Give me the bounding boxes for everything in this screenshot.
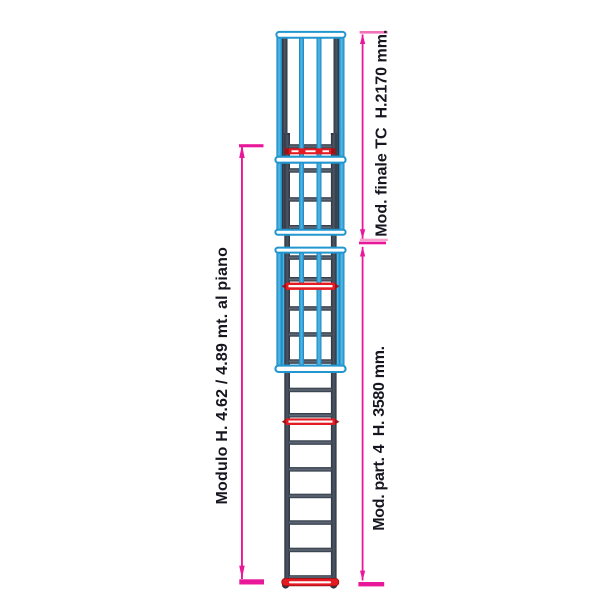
svg-text:Mod. finale TC H.2170 mm.: Mod. finale TC H.2170 mm. — [374, 30, 391, 237]
svg-text:Modulo H. 4.62 / 4.89 mt. al p: Modulo H. 4.62 / 4.89 mt. al piano — [214, 247, 231, 505]
svg-text:Mod. part. 4 H. 3580 mm.: Mod. part. 4 H. 3580 mm. — [371, 346, 388, 531]
